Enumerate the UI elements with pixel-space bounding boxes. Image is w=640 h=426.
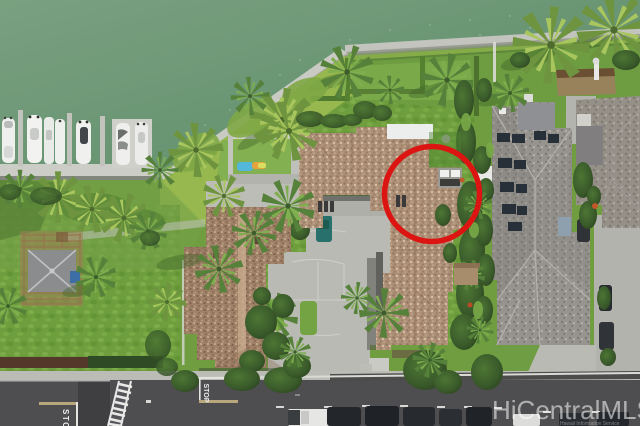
svg-text:STOP: STOP [202,384,209,403]
svg-text:Hawaii Information Service: Hawaii Information Service [560,421,620,426]
svg-text:STOP: STOP [61,409,70,426]
